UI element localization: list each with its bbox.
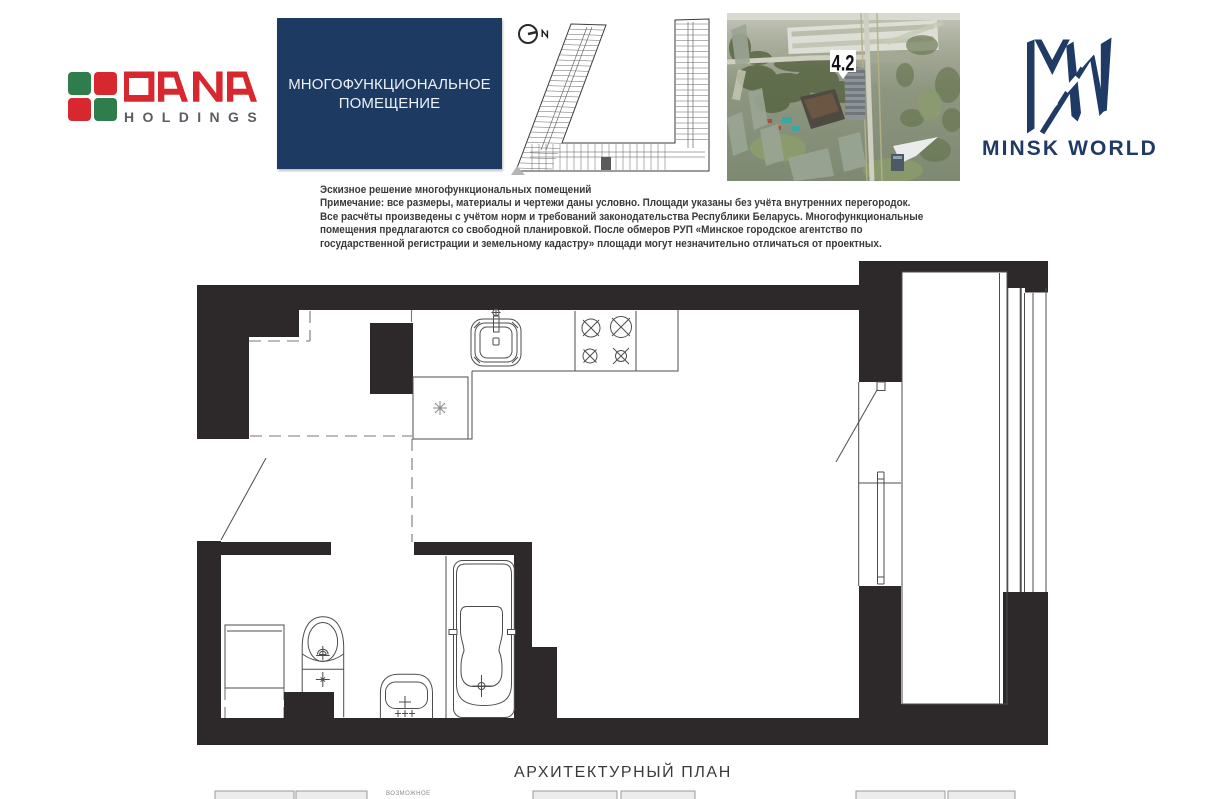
svg-text:4.2: 4.2 [832,51,855,76]
